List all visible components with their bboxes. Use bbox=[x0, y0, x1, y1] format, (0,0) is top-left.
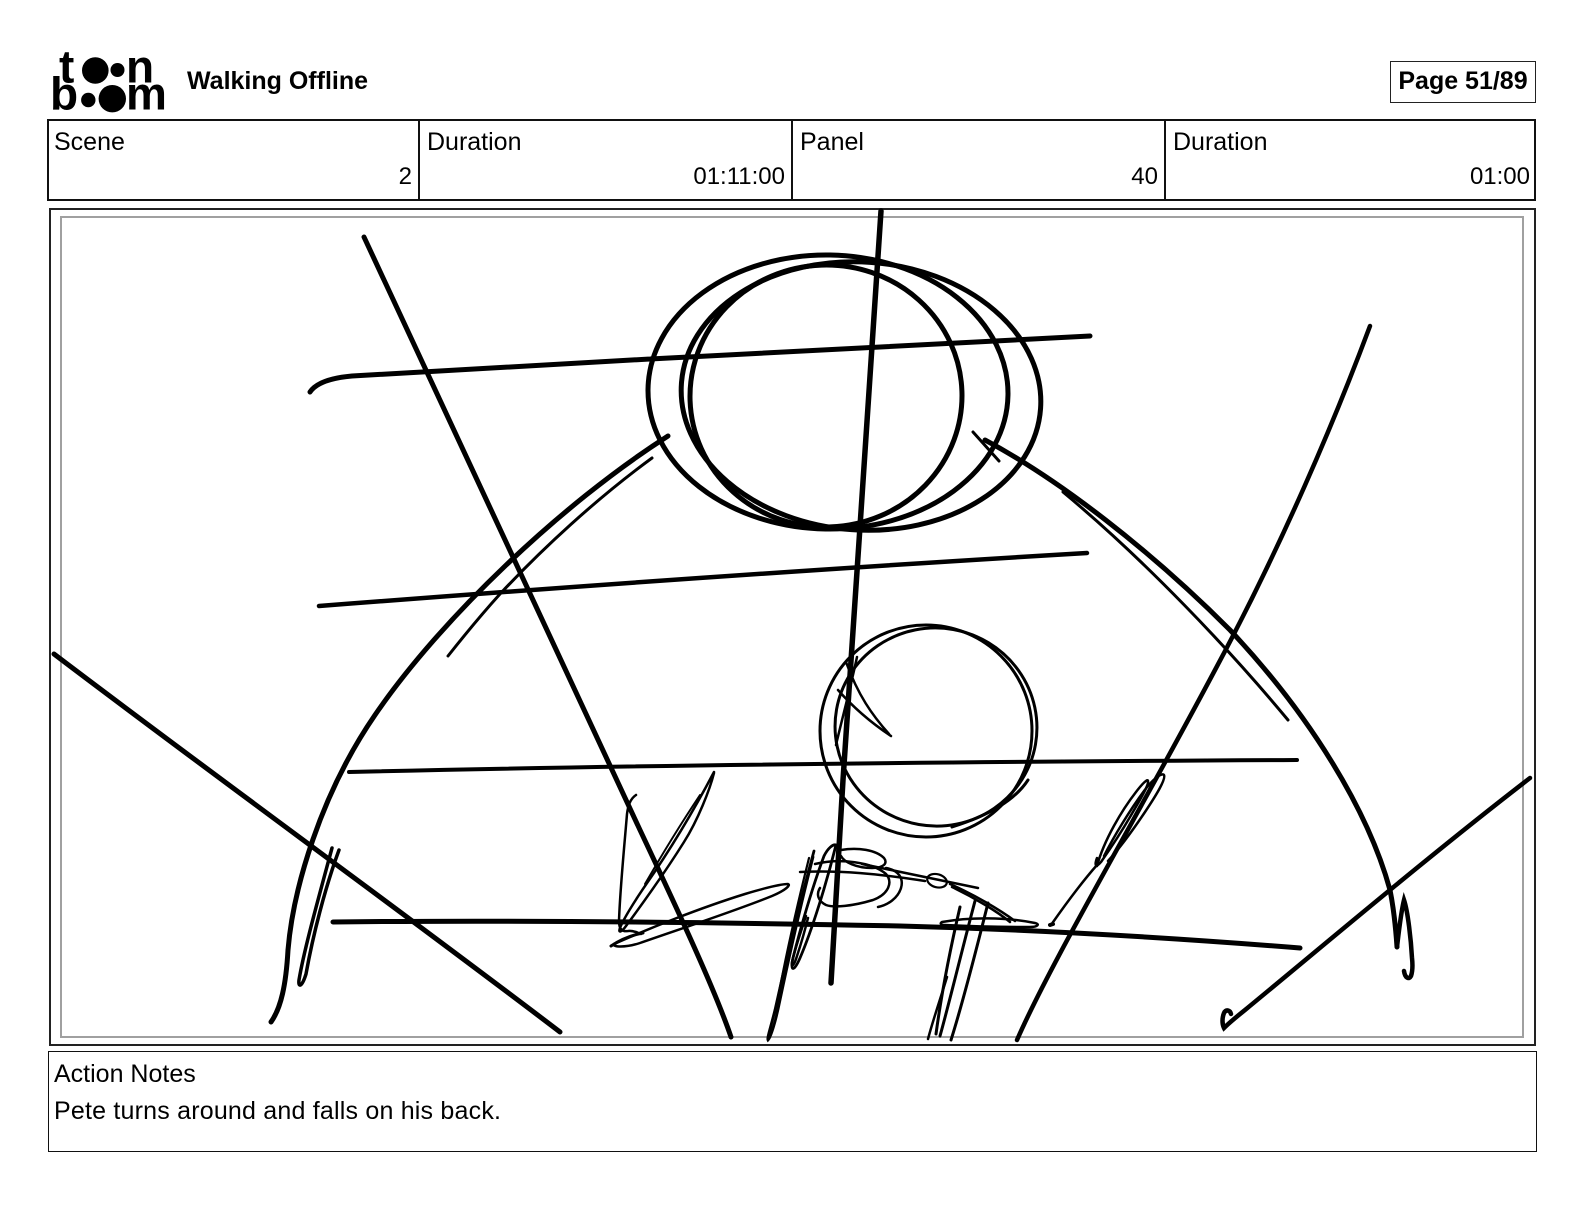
svg-text:b: b bbox=[50, 68, 78, 120]
svg-text:m: m bbox=[126, 68, 167, 120]
